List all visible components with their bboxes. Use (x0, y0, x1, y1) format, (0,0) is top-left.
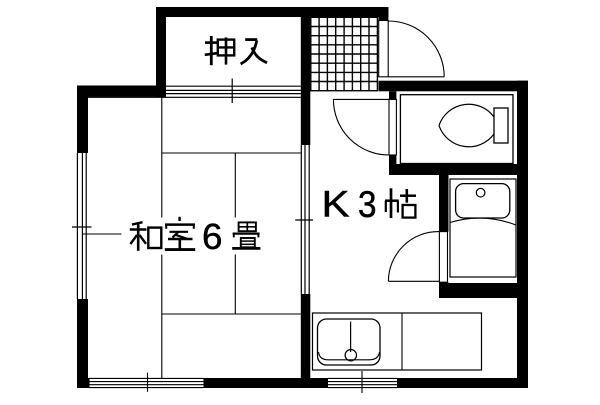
svg-text:3: 3 (358, 184, 377, 225)
svg-text:6: 6 (202, 216, 223, 257)
svg-text:K: K (322, 184, 350, 225)
